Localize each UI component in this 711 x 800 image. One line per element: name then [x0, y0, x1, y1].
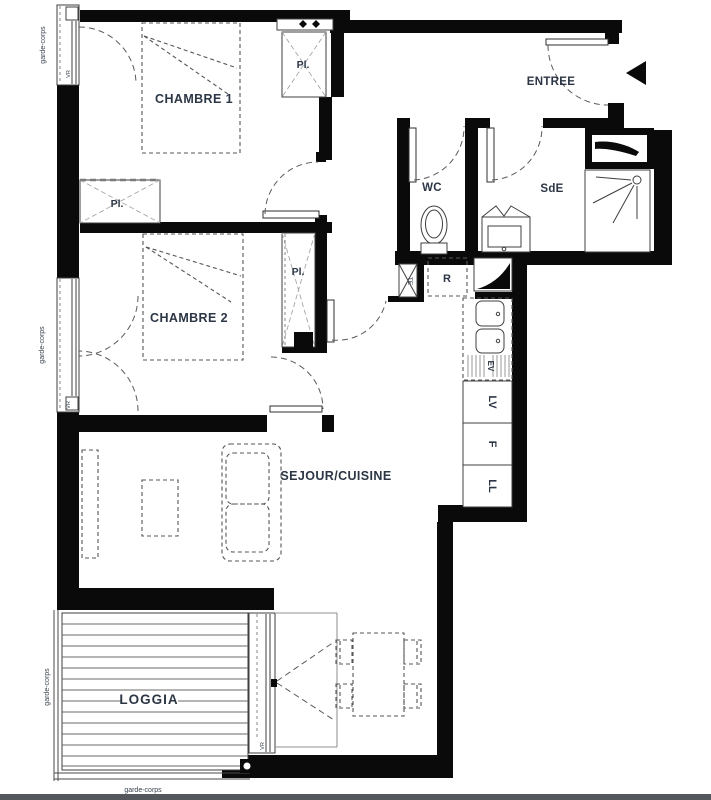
wall-sde-top	[543, 118, 611, 128]
sink-label: EV	[486, 361, 495, 372]
entrance-arrow-icon	[626, 61, 646, 85]
garde-corps-label: garde-corps	[44, 668, 51, 706]
chambre2-door	[270, 357, 323, 412]
wall-chambre2-bottom	[78, 415, 267, 432]
fridge-label: R	[443, 273, 451, 285]
furniture	[82, 23, 421, 716]
dishwasher-label: LV	[486, 395, 498, 409]
kitchen-corner-unit	[474, 258, 512, 291]
entry-door	[546, 39, 608, 105]
sideboard	[82, 450, 98, 558]
wall-chambre2-jamb	[322, 415, 334, 432]
garde-corps-label: garde-corps	[40, 26, 47, 64]
wall-bottom	[222, 755, 453, 778]
wall-wc-left	[397, 118, 410, 251]
sde-door	[487, 126, 542, 182]
apartment-floorplan: CHAMBRE 1 CHAMBRE 2 ENTREE WC SdE SEJOUR…	[0, 0, 711, 800]
wall-left-lower	[57, 412, 79, 610]
bed-chambre2	[143, 234, 243, 360]
shower	[585, 170, 650, 252]
oven-label: F	[486, 441, 498, 448]
room-label-entree: ENTREE	[527, 76, 575, 88]
closet-label: Pl.	[297, 59, 310, 71]
toilet	[421, 206, 447, 254]
wall-chambre1-right-up	[331, 30, 344, 97]
vr-label: VR	[260, 742, 266, 750]
door-hinge-block	[316, 152, 326, 162]
closets	[80, 32, 417, 348]
garde-corps-label: garde-corps	[39, 326, 46, 364]
closet-label: Pl.	[292, 266, 305, 278]
room-label-chambre1: CHAMBRE 1	[155, 92, 233, 106]
washer-label: LL	[486, 479, 498, 493]
wc-door	[409, 126, 464, 182]
wall-right-lower	[437, 522, 453, 778]
wall-left-upper	[57, 85, 79, 278]
washbasin	[482, 206, 530, 252]
loggia-post	[240, 759, 254, 773]
room-label-sejour-cuisine: SEJOUR/CUISINE	[280, 469, 391, 483]
guardrail-left	[54, 610, 58, 781]
wall-chambre-divider	[80, 222, 332, 233]
closet-label: Pl.	[111, 198, 124, 210]
wall-kitchen-step	[438, 505, 527, 522]
window-swing-chambre1	[79, 27, 136, 84]
vr-label: VR	[66, 70, 72, 78]
garde-corps-label: garde-corps	[124, 787, 162, 794]
guardrail-bottom	[54, 773, 250, 779]
room-label-wc: WC	[422, 182, 442, 194]
wall-sde-right	[654, 158, 672, 265]
loggia-french-doors	[276, 613, 337, 747]
closet-chambre2	[282, 233, 315, 348]
room-label-sde: SdE	[540, 183, 563, 195]
sofa	[222, 444, 281, 561]
room-label-loggia: LOGGIA	[119, 692, 178, 707]
coffee-table	[142, 480, 178, 536]
vent-window	[277, 19, 333, 30]
wall-sejour-loggia	[78, 588, 274, 610]
window-swing-chambre2-b	[79, 351, 138, 411]
dining-table	[336, 633, 421, 716]
te-label: TE	[406, 277, 413, 286]
wall-pl-chambre2-right	[315, 215, 327, 353]
vr-label: VR	[66, 401, 72, 409]
window-swing-chambre2-a	[79, 296, 138, 356]
fixtures	[421, 142, 650, 507]
hall-door	[327, 300, 386, 342]
closet-duct	[294, 332, 313, 348]
wall-top-entree	[345, 20, 622, 33]
floorplan-page: CHAMBRE 1 CHAMBRE 2 ENTREE WC SdE SEJOUR…	[0, 0, 711, 800]
room-label-chambre2: CHAMBRE 2	[150, 311, 228, 325]
bed-chambre1	[142, 23, 240, 153]
wall-te-right	[417, 264, 424, 298]
glazing-handle	[271, 679, 277, 687]
wall-wc-sde-divider	[465, 118, 478, 251]
bottom-edge-bar	[0, 794, 711, 800]
wall-chambre1-right-mid	[319, 97, 332, 160]
wall-sde-door-jamb	[465, 118, 490, 128]
chambre1-door	[263, 162, 319, 218]
window-door-loggia	[249, 613, 277, 753]
window-chambre2	[57, 278, 79, 412]
